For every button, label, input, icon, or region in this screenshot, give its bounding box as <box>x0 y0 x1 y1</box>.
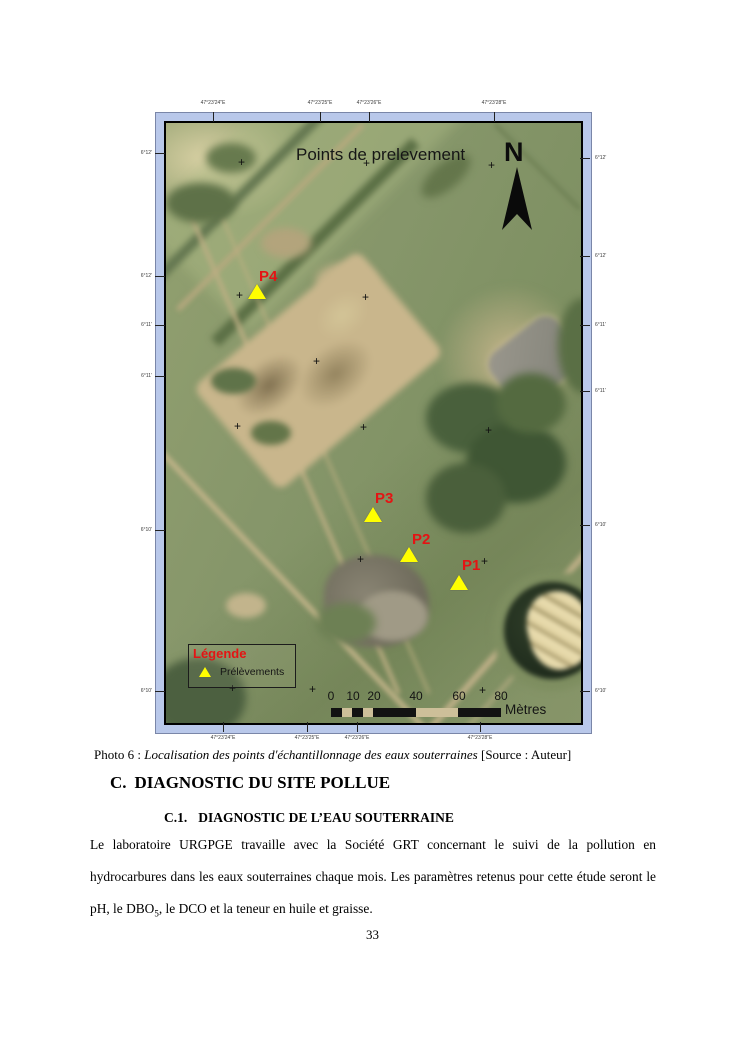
section-title: DIAGNOSTIC DU SITE POLLUE <box>135 773 391 792</box>
map-overlay: Points de prelevement N ++++++++++++++ P… <box>166 123 581 723</box>
graticule-label-bottom: 47°23'24"E <box>211 736 236 741</box>
scalebar <box>331 708 501 717</box>
scalebar-tick-label: 40 <box>409 689 422 703</box>
legend-row: Prélèvements <box>199 666 295 678</box>
graticule-cross: + <box>238 156 245 168</box>
graticule-label-bottom: 47°23'26"E <box>345 736 370 741</box>
graticule-tick <box>307 722 308 732</box>
graticule-cross: + <box>488 159 495 171</box>
sample-point-label: P3 <box>375 491 393 506</box>
sample-point-label: P2 <box>412 532 430 547</box>
graticule-label-right: 6°12' <box>595 254 606 259</box>
scalebar-segment <box>373 708 416 717</box>
sample-point-marker <box>400 547 418 562</box>
graticule-tick <box>155 153 165 154</box>
graticule-cross: + <box>360 421 367 433</box>
graticule-tick <box>223 722 224 732</box>
graticule-label-right: 6°11' <box>595 323 606 328</box>
subsection-number: C.1. <box>164 810 187 825</box>
sample-point-marker <box>450 575 468 590</box>
graticule-label-left: 6°12' <box>118 151 152 156</box>
map-legend: Légende Prélèvements <box>188 644 296 688</box>
graticule-label-right: 6°12' <box>595 156 606 161</box>
scalebar-segment <box>331 708 342 717</box>
graticule-cross: + <box>481 555 488 567</box>
graticule-label-left: 6°10' <box>118 528 152 533</box>
graticule-label-bottom: 47°23'25"E <box>295 736 320 741</box>
sample-point-marker <box>248 284 266 299</box>
graticule-tick <box>580 325 590 326</box>
graticule-label-top: 47°23'24"E <box>201 101 226 106</box>
graticule-tick <box>155 276 165 277</box>
graticule-tick <box>580 525 590 526</box>
map-title: Points de prelevement <box>296 145 465 165</box>
page-number: 33 <box>0 927 745 943</box>
map-frame: Points de prelevement N ++++++++++++++ P… <box>155 112 592 734</box>
graticule-label-top: 47°23'26"E <box>357 101 382 106</box>
subsection-title: DIAGNOSTIC DE L’EAU SOUTERRAINE <box>198 810 454 825</box>
graticule-cross: + <box>236 289 243 301</box>
graticule-label-left: 6°11' <box>118 323 152 328</box>
graticule-label-bottom: 47°23'28"E <box>468 736 493 741</box>
sample-point-label: P1 <box>462 558 480 573</box>
graticule-cross: + <box>362 291 369 303</box>
graticule-tick <box>155 325 165 326</box>
document-page: Points de prelevement N ++++++++++++++ P… <box>0 0 745 1053</box>
scalebar-segment <box>352 708 363 717</box>
graticule-cross: + <box>234 420 241 432</box>
graticule-tick <box>213 112 214 122</box>
caption-prefix: Photo 6 : <box>94 747 144 762</box>
graticule-tick <box>580 391 590 392</box>
graticule-tick <box>480 722 481 732</box>
north-label: N <box>504 137 524 168</box>
graticule-tick <box>155 376 165 377</box>
sample-point-label: P4 <box>259 269 277 284</box>
graticule-tick <box>155 691 165 692</box>
graticule-tick <box>494 112 495 122</box>
graticule-tick <box>155 530 165 531</box>
graticule-label-right: 6°11' <box>595 389 606 394</box>
graticule-cross: + <box>363 157 370 169</box>
scalebar-tick-label: 20 <box>367 689 380 703</box>
graticule-tick <box>357 722 358 732</box>
graticule-label-right: 6°10' <box>595 689 606 694</box>
graticule-cross: + <box>485 424 492 436</box>
legend-item-label: Prélèvements <box>220 666 284 678</box>
graticule-label-left: 6°12' <box>118 274 152 279</box>
scalebar-segment <box>416 708 458 717</box>
triangle-marker-icon <box>199 667 211 677</box>
caption-title: Localisation des points d'échantillonnag… <box>144 747 478 762</box>
legend-title: Légende <box>193 646 295 662</box>
graticule-label-top: 47°23'28"E <box>482 101 507 106</box>
scalebar-segment <box>342 708 352 717</box>
graticule-label-top: 47°23'25"E <box>308 101 333 106</box>
north-arrow-icon <box>498 167 536 233</box>
graticule-tick <box>369 112 370 122</box>
subsection-heading: C.1.DIAGNOSTIC DE L’EAU SOUTERRAINE <box>164 810 454 826</box>
graticule-cross: + <box>313 355 320 367</box>
scalebar-segment <box>458 708 501 717</box>
graticule-tick <box>580 256 590 257</box>
graticule-tick <box>580 691 590 692</box>
body-paragraph: Le laboratoire URGPGE travaille avec la … <box>90 829 656 930</box>
scalebar-tick-label: 60 <box>452 689 465 703</box>
scalebar-tick-label: 10 <box>346 689 359 703</box>
graticule-label-left: 6°11' <box>118 374 152 379</box>
scalebar-unit: Mètres <box>505 702 546 717</box>
scalebar-segment <box>363 708 373 717</box>
graticule-cross: + <box>309 683 316 695</box>
graticule-label-left: 6°10' <box>118 689 152 694</box>
sample-point-marker <box>364 507 382 522</box>
section-number: C. <box>110 773 127 792</box>
graticule-cross: + <box>357 553 364 565</box>
section-heading: C.DIAGNOSTIC DU SITE POLLUE <box>110 773 390 793</box>
graticule-cross: + <box>479 684 486 696</box>
graticule-tick <box>580 158 590 159</box>
caption-source: [Source : Auteur] <box>478 747 572 762</box>
figure-caption: Photo 6 : Localisation des points d'écha… <box>94 747 660 763</box>
aerial-photo: Points de prelevement N ++++++++++++++ P… <box>164 121 583 725</box>
body-text-2: , le DCO et la teneur en huile et graiss… <box>159 901 373 916</box>
graticule-tick <box>320 112 321 122</box>
graticule-label-right: 6°10' <box>595 523 606 528</box>
scalebar-tick-label: 80 <box>494 689 507 703</box>
scalebar-tick-label: 0 <box>328 689 335 703</box>
